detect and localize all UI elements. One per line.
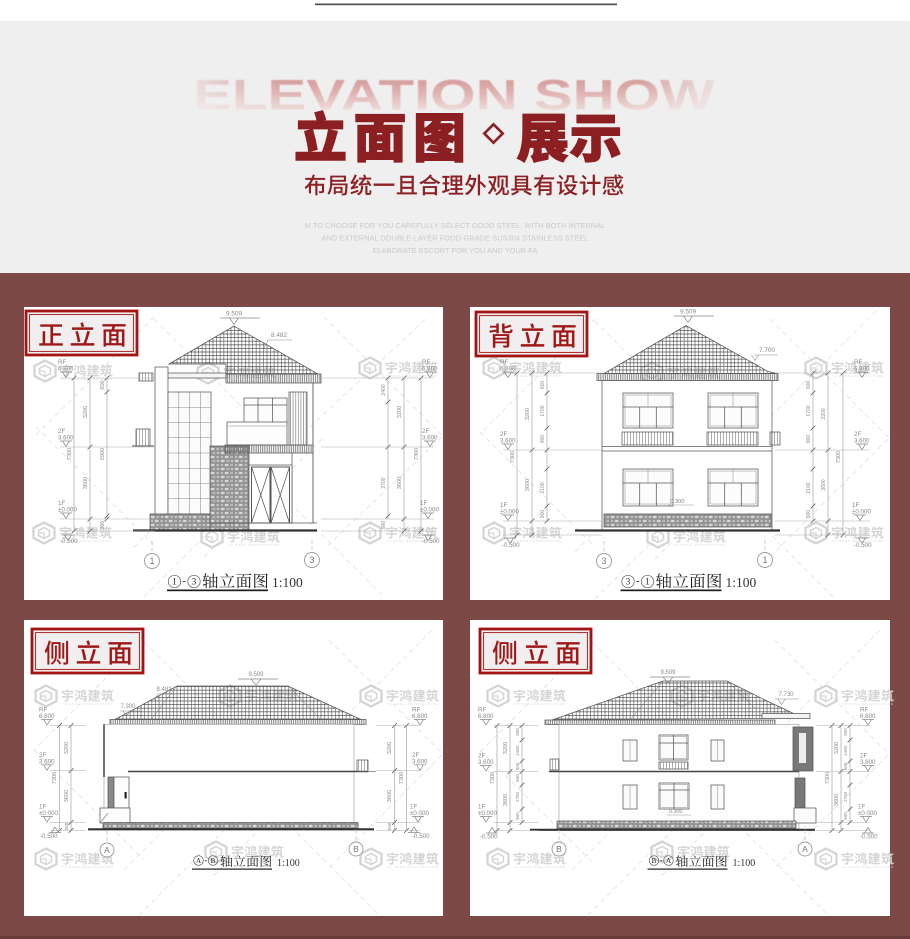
svg-text:3.600: 3.600	[854, 438, 870, 445]
svg-text:ELABORATE ESCORT FOR YOU AND Y: ELABORATE ESCORT FOR YOU AND YOUR FA	[372, 246, 537, 255]
svg-text:3: 3	[192, 577, 197, 587]
svg-text:900: 900	[381, 521, 387, 530]
svg-text:2700: 2700	[515, 791, 520, 802]
svg-text:M TO CHOOSE FOR YOU CAREFULLY: M TO CHOOSE FOR YOU CAREFULLY SELECT GOO…	[305, 221, 606, 230]
svg-text:-: -	[636, 575, 640, 587]
svg-text:900: 900	[540, 510, 546, 519]
svg-text:3600: 3600	[387, 790, 393, 802]
svg-text:500: 500	[387, 822, 392, 830]
svg-text:6.800: 6.800	[860, 713, 876, 720]
svg-text:2700: 2700	[381, 477, 387, 488]
svg-text:3200: 3200	[64, 742, 70, 754]
svg-text:9.509: 9.509	[680, 309, 696, 316]
svg-text:2100: 2100	[806, 482, 812, 493]
svg-text:3: 3	[601, 556, 606, 566]
svg-text:1: 1	[645, 577, 650, 587]
svg-text:900: 900	[515, 812, 520, 820]
svg-text:3: 3	[626, 577, 631, 587]
svg-text:1700: 1700	[540, 405, 546, 416]
svg-text:3600: 3600	[834, 794, 840, 806]
svg-text:-0.500: -0.500	[422, 538, 440, 545]
svg-text:1:100: 1:100	[272, 575, 303, 590]
svg-text:300: 300	[100, 521, 106, 530]
svg-text:3600: 3600	[503, 794, 509, 806]
svg-text:2700: 2700	[843, 791, 848, 802]
svg-text:-: -	[182, 575, 186, 587]
svg-text:3600: 3600	[83, 477, 89, 489]
svg-text:600: 600	[806, 381, 812, 390]
svg-text:6.800: 6.800	[500, 366, 516, 373]
svg-text:6.800: 6.800	[422, 366, 438, 373]
svg-text:7300: 7300	[825, 772, 831, 784]
svg-text:3.600: 3.600	[58, 435, 74, 442]
svg-text:2400: 2400	[381, 384, 387, 395]
svg-text:-: -	[204, 855, 207, 865]
svg-text:1400: 1400	[843, 745, 848, 756]
svg-text:-0.500: -0.500	[480, 834, 498, 841]
svg-text:900: 900	[806, 510, 812, 519]
svg-text:-0.500: -0.500	[40, 833, 58, 840]
svg-text:3600: 3600	[397, 477, 403, 489]
svg-text:3: 3	[309, 555, 314, 565]
svg-text:A: A	[196, 857, 201, 865]
svg-text:±0.000: ±0.000	[39, 810, 58, 817]
svg-text:B: B	[353, 844, 359, 854]
svg-text:7300: 7300	[67, 448, 73, 460]
svg-text:7.730: 7.730	[778, 692, 794, 698]
svg-text:7300: 7300	[836, 451, 842, 463]
svg-text:3200: 3200	[83, 406, 89, 418]
svg-text:1:100: 1:100	[726, 575, 757, 590]
svg-text:900: 900	[843, 812, 848, 820]
svg-text:3200: 3200	[503, 742, 509, 754]
svg-text:900: 900	[540, 435, 546, 444]
svg-text:±0.000: ±0.000	[500, 509, 519, 516]
svg-text:1: 1	[149, 556, 154, 566]
svg-text:3.600: 3.600	[422, 435, 438, 442]
svg-text:1700: 1700	[806, 405, 812, 416]
svg-text:6.800: 6.800	[854, 366, 870, 373]
svg-text:3600: 3600	[821, 479, 827, 490]
svg-text:±0.000: ±0.000	[852, 509, 871, 516]
svg-text:A: A	[802, 844, 808, 854]
svg-text:600: 600	[515, 774, 520, 782]
svg-text:A: A	[104, 845, 110, 855]
svg-text:6.800: 6.800	[478, 713, 494, 720]
svg-text:3.600: 3.600	[500, 438, 516, 445]
svg-text:500: 500	[843, 762, 848, 770]
svg-text:-0.500: -0.500	[502, 542, 520, 549]
svg-text:3.600: 3.600	[412, 758, 428, 765]
svg-text:500: 500	[515, 762, 520, 770]
svg-text:3200: 3200	[397, 406, 403, 418]
svg-text:B: B	[652, 857, 657, 865]
svg-text:1:100: 1:100	[277, 858, 300, 869]
svg-text:7300: 7300	[52, 772, 58, 784]
svg-text:7300: 7300	[399, 772, 405, 784]
svg-text:9.509: 9.509	[248, 672, 264, 678]
svg-text:1400: 1400	[515, 745, 520, 756]
svg-text:±0.000: ±0.000	[58, 507, 77, 514]
svg-text:-0.500: -0.500	[854, 542, 872, 549]
svg-text:3600: 3600	[525, 479, 531, 491]
svg-text:500: 500	[64, 822, 69, 830]
svg-text:0.300: 0.300	[669, 809, 683, 815]
svg-text:7.700: 7.700	[759, 347, 775, 354]
svg-text:3.600: 3.600	[478, 759, 494, 766]
svg-text:-0.500: -0.500	[412, 833, 430, 840]
svg-text:3200: 3200	[834, 742, 840, 754]
svg-text:1:100: 1:100	[733, 858, 756, 869]
svg-text:900: 900	[843, 728, 848, 736]
svg-text:900: 900	[515, 728, 520, 736]
svg-text:3200: 3200	[821, 408, 827, 419]
svg-text:5900: 5900	[100, 448, 106, 460]
svg-text:-0.500: -0.500	[860, 834, 878, 841]
svg-text:3200: 3200	[525, 408, 531, 420]
svg-text:3600: 3600	[64, 790, 70, 802]
svg-text:6.800: 6.800	[39, 713, 55, 720]
svg-text:0.300: 0.300	[670, 499, 685, 505]
svg-text:9.509: 9.509	[660, 670, 676, 676]
svg-text:1: 1	[172, 577, 177, 587]
svg-text:7300: 7300	[510, 451, 516, 463]
svg-text:3200: 3200	[387, 742, 393, 754]
svg-text:7300: 7300	[490, 772, 496, 784]
svg-text:±0.000: ±0.000	[410, 810, 429, 817]
svg-text:±0.000: ±0.000	[478, 810, 497, 817]
svg-text:±0.000: ±0.000	[858, 810, 877, 817]
svg-text:-: -	[660, 855, 663, 865]
svg-text:1: 1	[762, 555, 767, 565]
svg-text:±0.000: ±0.000	[420, 507, 439, 514]
svg-text:8.482: 8.482	[271, 332, 287, 339]
svg-text:600: 600	[540, 381, 546, 390]
svg-text:B: B	[211, 857, 216, 865]
svg-text:B: B	[556, 844, 562, 854]
svg-text:2100: 2100	[540, 482, 546, 493]
svg-text:3.600: 3.600	[860, 759, 876, 766]
svg-text:900: 900	[806, 435, 812, 444]
svg-text:9.509: 9.509	[226, 311, 242, 318]
svg-text:A: A	[666, 857, 671, 865]
svg-text:8.482: 8.482	[156, 687, 172, 693]
svg-text:3.600: 3.600	[39, 758, 55, 765]
svg-text:600: 600	[100, 380, 106, 389]
svg-text:AND EXTERNAL DOUBLE-LAYER FOOD: AND EXTERNAL DOUBLE-LAYER FOOD-GRADE SUS…	[322, 234, 589, 243]
svg-text:6.800: 6.800	[58, 366, 74, 373]
svg-text:6.800: 6.800	[412, 713, 428, 720]
svg-text:7.300: 7.300	[120, 704, 136, 710]
svg-text:7300: 7300	[414, 448, 420, 460]
